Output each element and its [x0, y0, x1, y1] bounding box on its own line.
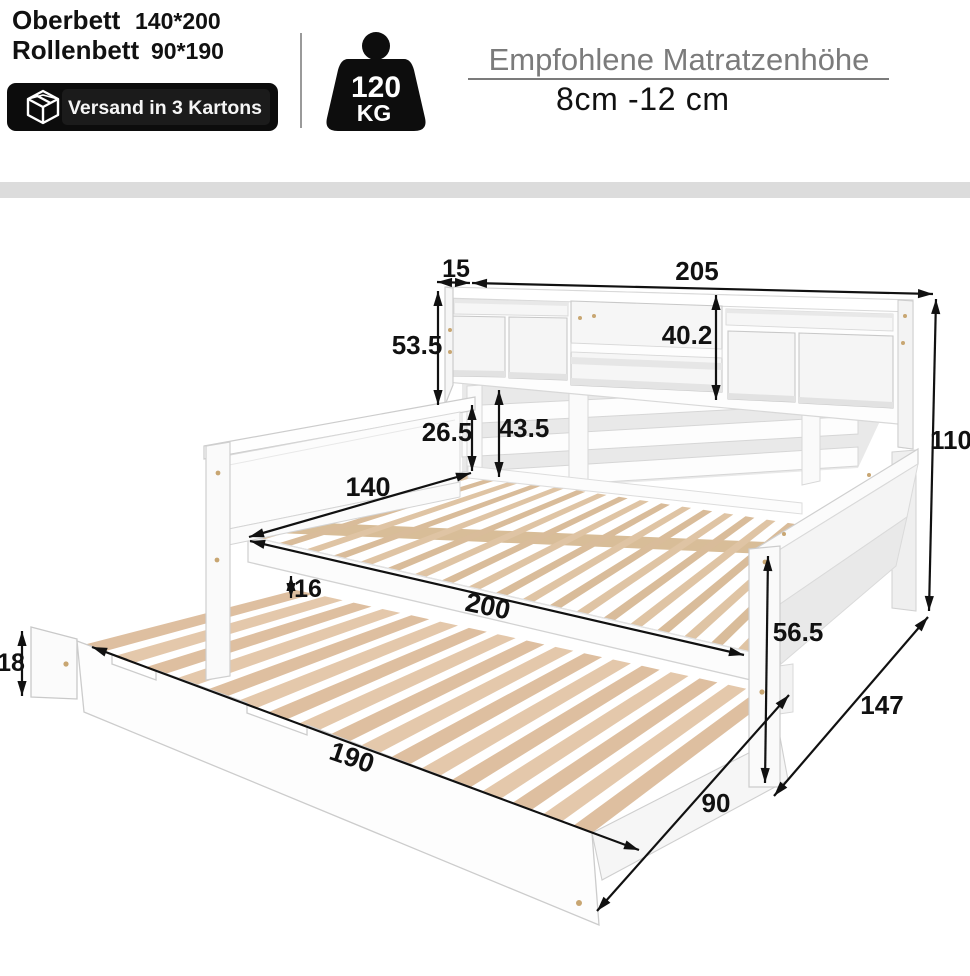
svg-text:26.5: 26.5 [422, 417, 473, 447]
svg-text:147: 147 [860, 690, 903, 720]
svg-text:90*190: 90*190 [151, 38, 224, 64]
svg-text:KG: KG [357, 100, 392, 126]
svg-text:40.2: 40.2 [662, 320, 713, 350]
svg-text:140*200: 140*200 [135, 8, 221, 34]
svg-text:Versand in 3 Kartons: Versand in 3 Kartons [68, 97, 262, 119]
svg-text:15: 15 [442, 255, 470, 283]
svg-text:Rollenbett: Rollenbett [12, 35, 139, 65]
svg-text:43.5: 43.5 [499, 413, 550, 443]
svg-text:18: 18 [0, 649, 25, 677]
svg-text:8cm -12 cm: 8cm -12 cm [556, 81, 729, 117]
svg-text:140: 140 [345, 472, 390, 502]
svg-text:53.5: 53.5 [392, 330, 443, 360]
svg-text:Oberbett: Oberbett [12, 5, 121, 35]
svg-text:110: 110 [930, 425, 970, 455]
svg-text:16: 16 [294, 575, 322, 603]
svg-text:56.5: 56.5 [773, 617, 824, 647]
svg-text:205: 205 [675, 256, 718, 286]
svg-text:90: 90 [702, 788, 731, 818]
svg-text:Empfohlene Matratzenhöhe: Empfohlene Matratzenhöhe [489, 42, 870, 77]
